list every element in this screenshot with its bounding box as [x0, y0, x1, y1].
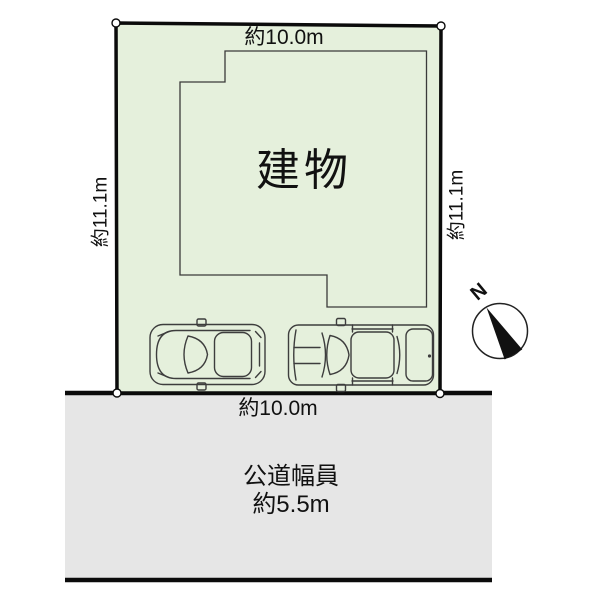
road-width-label-line2: 約5.5m: [252, 491, 329, 518]
plot-left-dimension: 約11.1m: [90, 177, 112, 247]
road-width-label-line1: 公道幅員: [243, 463, 339, 490]
site-plan: N 約10.0m 約11.1m 約11.1m 約10.0m 建物 公道幅員 約5…: [0, 0, 600, 600]
compass: N: [466, 279, 527, 360]
compass-north-label: N: [466, 279, 491, 305]
plot-corner-marker: [112, 19, 120, 27]
building-label: 建物: [256, 146, 352, 195]
plot-corner-marker: [437, 22, 445, 30]
plot-right-dimension: 約11.1m: [446, 170, 468, 240]
plot-top-dimension: 約10.0m: [244, 26, 323, 49]
plot-bottom-dimension: 約10.0m: [238, 397, 317, 420]
site-plan-canvas: N 約10.0m 約11.1m 約11.1m 約10.0m 建物 公道幅員 約5…: [0, 0, 600, 600]
plot-corner-marker: [436, 390, 444, 398]
plot-corner-marker: [113, 389, 121, 397]
